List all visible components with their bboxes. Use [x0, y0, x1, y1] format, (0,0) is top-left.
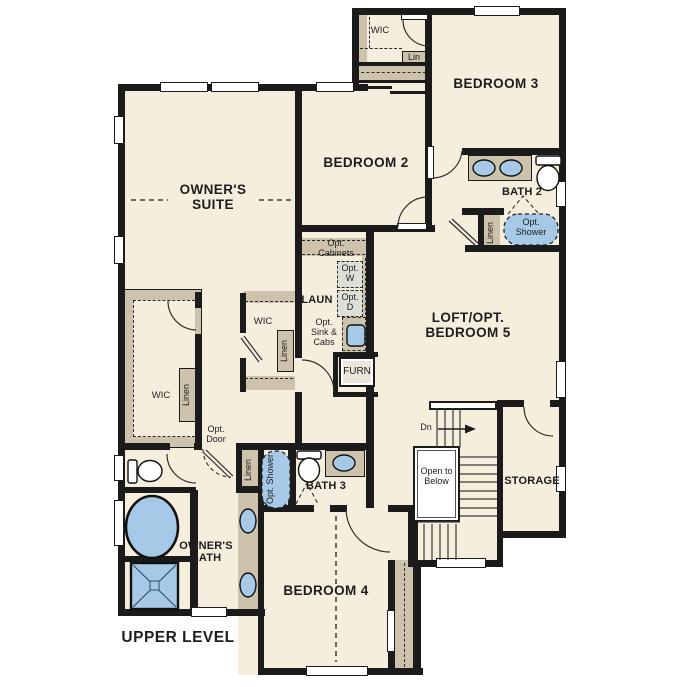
wall [352, 8, 359, 86]
wall [478, 212, 484, 250]
label-linen-bath2: Linen [485, 215, 499, 250]
bypass-door-line [390, 91, 428, 94]
window [114, 116, 124, 144]
room-label-storage: STORAGE [503, 475, 561, 487]
label-linen-left: Linen [181, 370, 194, 420]
wall [295, 84, 302, 358]
window [114, 455, 124, 481]
label-linen-bath3: Linen [243, 450, 257, 490]
wall [118, 443, 170, 450]
wic-mid-dash1 [245, 301, 293, 302]
label-furnace: FURN [339, 366, 375, 377]
label-linen-mid: Linen [279, 331, 292, 371]
label-opt-shower-bath3: Opt. Shower [265, 451, 275, 507]
wall [550, 400, 566, 407]
wall [500, 400, 524, 407]
door-leaf [397, 223, 427, 230]
bath2-vanity [468, 155, 532, 181]
window [211, 82, 259, 92]
wall [258, 443, 264, 675]
wall [388, 650, 395, 675]
bedroom4-closet-dash [404, 563, 405, 667]
window [306, 666, 368, 676]
room-label-bedroom3: BEDROOM 3 [440, 76, 552, 91]
label-wic-mid: WIC [248, 317, 278, 328]
room-label-bath3: BATH 3 [305, 480, 347, 492]
wall [388, 560, 395, 612]
wall [195, 292, 202, 308]
wall [354, 80, 428, 83]
label-opt-washer: Opt. W [338, 263, 362, 283]
wall [352, 8, 566, 15]
stair-railing [429, 401, 497, 410]
bypass-door-line [356, 86, 392, 89]
label-opt-dryer: Opt. D [338, 292, 362, 312]
door-leaf [427, 146, 434, 179]
window [191, 607, 227, 617]
room-label-owners-bath: OWNER'S BATH [172, 540, 240, 565]
window [436, 558, 486, 568]
window [114, 500, 124, 546]
wall [288, 450, 296, 508]
window [474, 6, 520, 16]
label-opt-shower-bath2: Opt. Shower [511, 217, 551, 237]
label-stairs-dn: Dn [416, 422, 436, 432]
bath3-vanity [325, 450, 365, 477]
door-leaf [401, 14, 428, 20]
label-lin: Lin [402, 52, 426, 62]
window [316, 82, 354, 92]
floor-plan: OWNER'S SUITE BEDROOM 2 BEDROOM 3 BEDROO… [0, 0, 687, 687]
owners-vanity [238, 493, 258, 609]
wall [330, 505, 347, 512]
sliding-door [387, 610, 395, 652]
label-opt-sink-cabs: Opt. Sink & Cabs [306, 317, 342, 347]
wall [333, 352, 338, 397]
room-label-bedroom4: BEDROOM 4 [270, 583, 382, 598]
wall [240, 358, 246, 392]
label-opt-cabinets: Opt. Cabinets [313, 238, 359, 258]
room-label-bath2: BATH 2 [496, 186, 548, 198]
wall [240, 293, 246, 333]
wic-top-rod-line2 [360, 48, 402, 49]
label-wic-top: WIC [366, 26, 394, 37]
wall [122, 487, 196, 493]
room-label-owners-suite: OWNER'S SUITE [163, 182, 263, 212]
label-open-to-below: Open to Below [419, 466, 454, 486]
wall [295, 392, 302, 450]
wic-mid-dash2 [245, 378, 293, 379]
wall [425, 15, 432, 227]
window [114, 236, 124, 264]
wall [352, 62, 428, 66]
wic-top-shelf [358, 15, 367, 62]
plan-title: UPPER LEVEL [116, 629, 240, 646]
wall [559, 8, 566, 538]
wall [333, 392, 378, 397]
wall [413, 560, 421, 675]
wall [462, 148, 566, 155]
room-label-loft: LOFT/OPT. BEDROOM 5 [412, 310, 524, 340]
bedroom2-closet-rod [356, 72, 426, 73]
window [160, 82, 208, 92]
room-label-laundry: LAUN [298, 294, 336, 306]
window [556, 181, 566, 207]
wall [236, 443, 242, 493]
wall [500, 531, 566, 538]
label-opt-door: Opt. Door [200, 424, 232, 444]
opt-sink-box [342, 317, 366, 351]
window [556, 361, 566, 398]
room-label-bedroom2: BEDROOM 2 [310, 155, 422, 170]
label-wic-left: WIC [146, 391, 176, 402]
